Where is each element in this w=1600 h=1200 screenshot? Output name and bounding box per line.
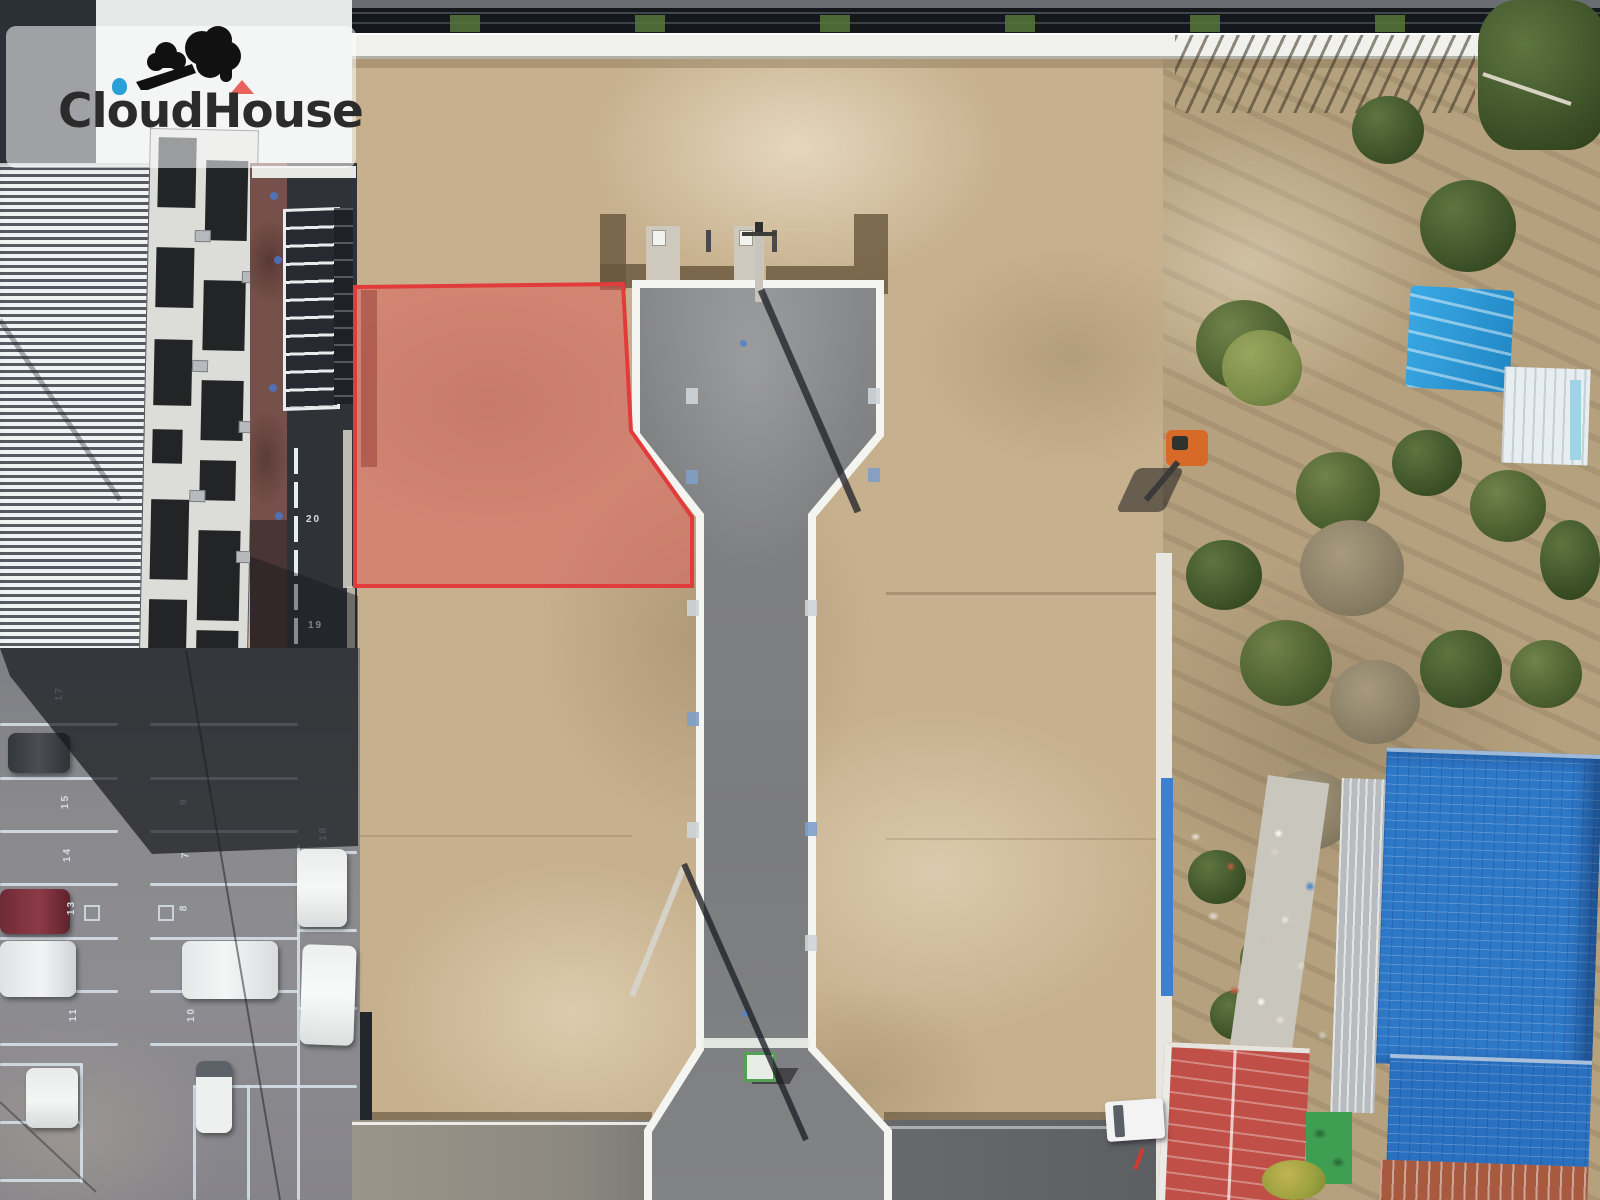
- stall-number: 7: [180, 851, 191, 859]
- walkway-shadow: [250, 520, 289, 655]
- tree: [1420, 180, 1516, 272]
- tree: [1540, 520, 1600, 600]
- trackside-bushes: [380, 15, 1530, 32]
- tree: [1420, 630, 1502, 708]
- cloud-bird-logo-icon: [134, 20, 244, 90]
- curb-pad: [868, 388, 880, 404]
- road-edge-line: [294, 448, 298, 658]
- stop-line: [702, 1038, 810, 1048]
- lot-boundary-line: [886, 838, 1164, 840]
- lane-number: 20: [306, 514, 321, 525]
- stall-number: 18: [318, 826, 329, 841]
- yard-clutter: [1178, 812, 1354, 1060]
- stake: [706, 230, 711, 252]
- cut-brush-rows: [1175, 35, 1475, 113]
- manhole-cover: [275, 512, 283, 520]
- logo-wordmark: CloudHouse: [58, 84, 363, 139]
- tree-cluster: [1478, 0, 1600, 150]
- marker-post: [652, 230, 666, 246]
- carport-row: [283, 207, 340, 411]
- excavator-cab: [1172, 436, 1188, 450]
- lot-boundary-line: [357, 835, 632, 837]
- stall-number: 15: [60, 794, 71, 809]
- utility-pole-crossarm: [742, 232, 776, 236]
- rusty-roof-band: [1379, 1160, 1589, 1200]
- road-curb-line: [884, 1126, 1144, 1129]
- yellow-bush: [1262, 1160, 1326, 1200]
- curb-pad: [686, 388, 698, 404]
- curb-pad: [805, 600, 817, 616]
- cloudhouse-logo-card: CloudHouse: [6, 26, 356, 168]
- tree: [1296, 452, 1380, 532]
- curb-pad: [805, 935, 817, 951]
- manhole-cover: [270, 192, 278, 200]
- survey-mark: [868, 468, 880, 482]
- manhole-cover: [274, 256, 282, 264]
- kei-truck-white: [196, 1061, 232, 1133]
- aerial-site-photo: 20 19 17 15 14 13 11 9 7 8 10 18: [0, 0, 1600, 1200]
- apartment-building-roof: [138, 128, 259, 698]
- blue-roof-lower: [1386, 1054, 1592, 1177]
- road-center-mark: [742, 1010, 749, 1017]
- stall-number: 17: [54, 686, 65, 701]
- survey-mark: [687, 712, 699, 726]
- stall-number: 14: [62, 847, 73, 862]
- drain-grate: [744, 1052, 776, 1082]
- blue-roof-upper: [1376, 748, 1600, 1071]
- road-center-mark: [740, 340, 747, 347]
- curb-pad: [687, 600, 699, 616]
- car-dark-gray: [8, 733, 70, 773]
- stall-number: 9: [178, 798, 189, 806]
- manhole-cover: [269, 384, 277, 392]
- survey-mark: [686, 470, 698, 484]
- bare-tree: [1330, 660, 1420, 744]
- car-white: [0, 941, 76, 997]
- white-truck: [1105, 1098, 1166, 1142]
- lane-number: 19: [308, 620, 323, 631]
- tree: [1352, 96, 1424, 164]
- boundary-wall-blue: [1161, 778, 1173, 996]
- bare-tree: [1300, 520, 1404, 616]
- car-white: [26, 1068, 78, 1128]
- tree: [1510, 640, 1582, 708]
- bicycle-parking: [334, 208, 353, 404]
- logo-word-house: House: [203, 84, 363, 139]
- survey-mark: [805, 822, 817, 836]
- stall-number: 8: [178, 904, 189, 912]
- blue-tile-roof-house: [1327, 746, 1600, 1200]
- curb: [343, 430, 352, 588]
- road-curb-line: [352, 1122, 652, 1125]
- tree: [1222, 330, 1302, 406]
- car-white: [297, 849, 347, 927]
- stall-number: 13: [66, 900, 77, 915]
- tree: [1392, 430, 1462, 496]
- stall-number: 10: [186, 1007, 197, 1022]
- car-maroon: [0, 889, 70, 934]
- tree: [1186, 540, 1262, 610]
- tree: [1470, 470, 1546, 542]
- logo-word-cloud: Cloud: [58, 84, 203, 139]
- car-white: [299, 944, 356, 1046]
- stall-number: 11: [68, 1007, 79, 1022]
- blue-tarp-shed: [1405, 285, 1514, 392]
- shed-blue-panel: [1570, 380, 1581, 460]
- lot-boundary-line: [886, 592, 1164, 595]
- curb-pad: [687, 822, 699, 838]
- tree: [1240, 620, 1332, 706]
- car-white: [182, 941, 278, 999]
